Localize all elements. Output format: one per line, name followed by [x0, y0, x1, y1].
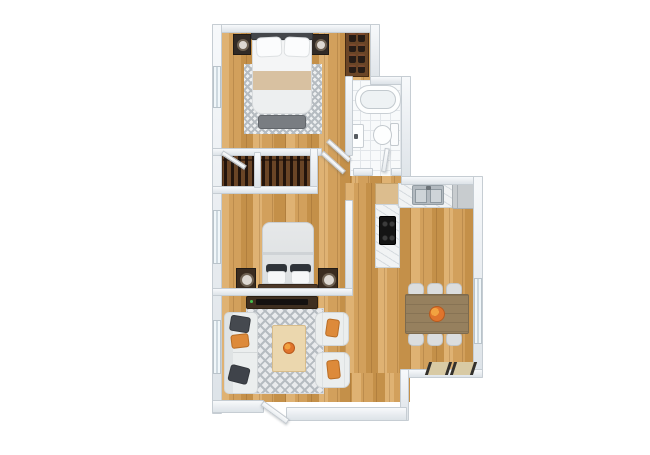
- wall-top: [212, 24, 380, 33]
- window-bedroom1: [213, 66, 221, 108]
- wall-right: [473, 176, 483, 378]
- sink-basin: [415, 189, 427, 203]
- wall-bathroom-bottom-b: [391, 168, 402, 176]
- shoe-pair: [349, 44, 356, 53]
- nightstand: [236, 268, 256, 290]
- shoe-pair: [349, 65, 356, 74]
- lamp-icon: [237, 39, 249, 51]
- wall-closet-divider: [254, 152, 261, 188]
- armchair-pillow: [326, 359, 341, 379]
- lamp-icon: [322, 273, 336, 287]
- tv: [256, 299, 308, 305]
- shoe-pair: [349, 33, 356, 42]
- wall-bedroom2-right: [345, 200, 353, 296]
- dining-chair: [408, 332, 424, 346]
- floor-plan: [0, 0, 650, 455]
- dining-chair: [427, 332, 443, 346]
- cooktop: [379, 216, 396, 245]
- wall-kitchen-top: [401, 176, 483, 185]
- nightstand: [311, 34, 329, 55]
- faucet-icon: [354, 134, 358, 139]
- wall-bathroom-left: [345, 76, 353, 156]
- shoe-pair: [358, 54, 365, 63]
- bathtub-basin: [360, 90, 396, 109]
- armchair-pillow: [325, 318, 340, 338]
- bathtub: [355, 85, 401, 114]
- nightstand: [318, 268, 338, 290]
- wall-closet-bottom: [212, 186, 318, 194]
- wall-bedroom2-bottom: [212, 288, 353, 296]
- wall-bathroom-bottom-a: [353, 168, 373, 176]
- shoe-shelf: [345, 29, 369, 77]
- window-living: [213, 320, 221, 374]
- dining-chair: [446, 332, 462, 346]
- shoe-pair: [358, 44, 365, 53]
- shoe-pair: [358, 33, 365, 42]
- floor-mat: [425, 362, 452, 375]
- wall-bottom-left: [212, 400, 264, 413]
- power-led-icon: [250, 300, 253, 303]
- floor-mat: [450, 362, 477, 375]
- shoe-pair: [358, 65, 365, 74]
- shoe-pair: [349, 54, 356, 63]
- bed2-pillow-white: [291, 271, 310, 284]
- sink-basin: [430, 189, 442, 203]
- nightstand: [233, 34, 251, 55]
- bed2-pillow-white: [267, 271, 286, 284]
- closet-right: [260, 154, 311, 188]
- coffee-table-bowl: [283, 342, 295, 354]
- foot-bench: [258, 115, 306, 129]
- wall-niche-right: [370, 24, 380, 84]
- counter-cutting-board: [375, 183, 400, 205]
- lamp-icon: [315, 39, 327, 51]
- faucet-icon: [426, 186, 431, 190]
- bed2-fold: [263, 252, 313, 255]
- wall-bottom-right: [286, 407, 407, 421]
- kitchen-sink: [412, 185, 444, 205]
- bed1-pillow: [255, 36, 282, 57]
- sofa-pillow-dark: [229, 315, 251, 334]
- lamp-icon: [240, 273, 254, 287]
- wall-bathroom-right: [401, 76, 411, 185]
- toilet-bowl: [373, 125, 392, 145]
- window-bedroom2: [213, 210, 221, 264]
- sofa-pillow-orange: [230, 333, 250, 349]
- window-dining: [474, 278, 482, 344]
- table-centerpiece: [429, 306, 445, 322]
- bed1-pillow: [283, 36, 310, 57]
